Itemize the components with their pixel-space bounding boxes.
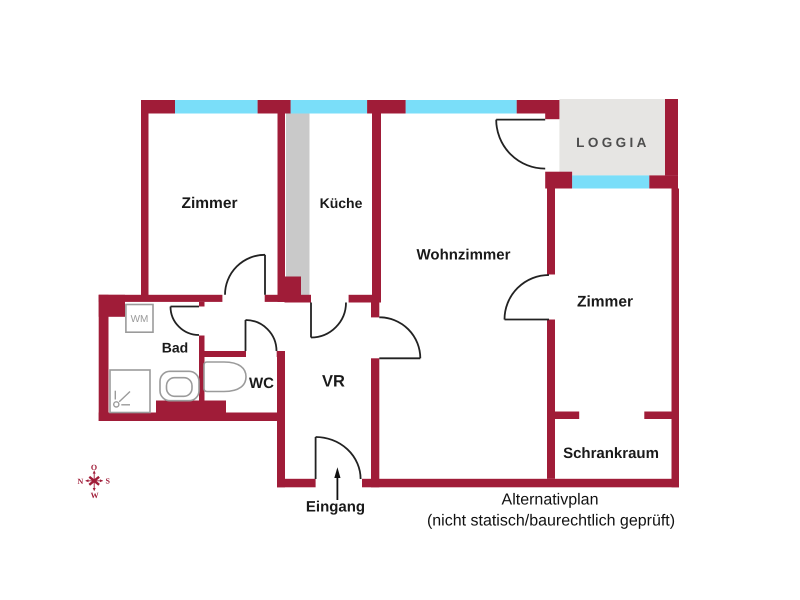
svg-text:S: S [105,477,110,486]
svg-text:LOGGIA: LOGGIA [576,135,650,150]
svg-text:VR: VR [322,373,345,391]
svg-text:Eingang: Eingang [306,499,365,516]
svg-text:Wohnzimmer: Wohnzimmer [417,247,511,264]
svg-text:Bad: Bad [162,340,188,356]
svg-text:(nicht statisch/baurechtlich g: (nicht statisch/baurechtlich geprüft) [427,513,675,530]
svg-text:WC: WC [249,375,274,392]
svg-text:O: O [91,463,97,472]
svg-text:WM: WM [131,314,149,325]
svg-text:N: N [78,477,84,486]
svg-text:Zimmer: Zimmer [182,195,238,212]
svg-text:Zimmer: Zimmer [577,294,633,311]
svg-text:Küche: Küche [320,195,363,211]
svg-text:Alternativplan: Alternativplan [502,492,599,509]
svg-text:W: W [91,491,99,500]
svg-text:Schrankraum: Schrankraum [563,445,659,462]
